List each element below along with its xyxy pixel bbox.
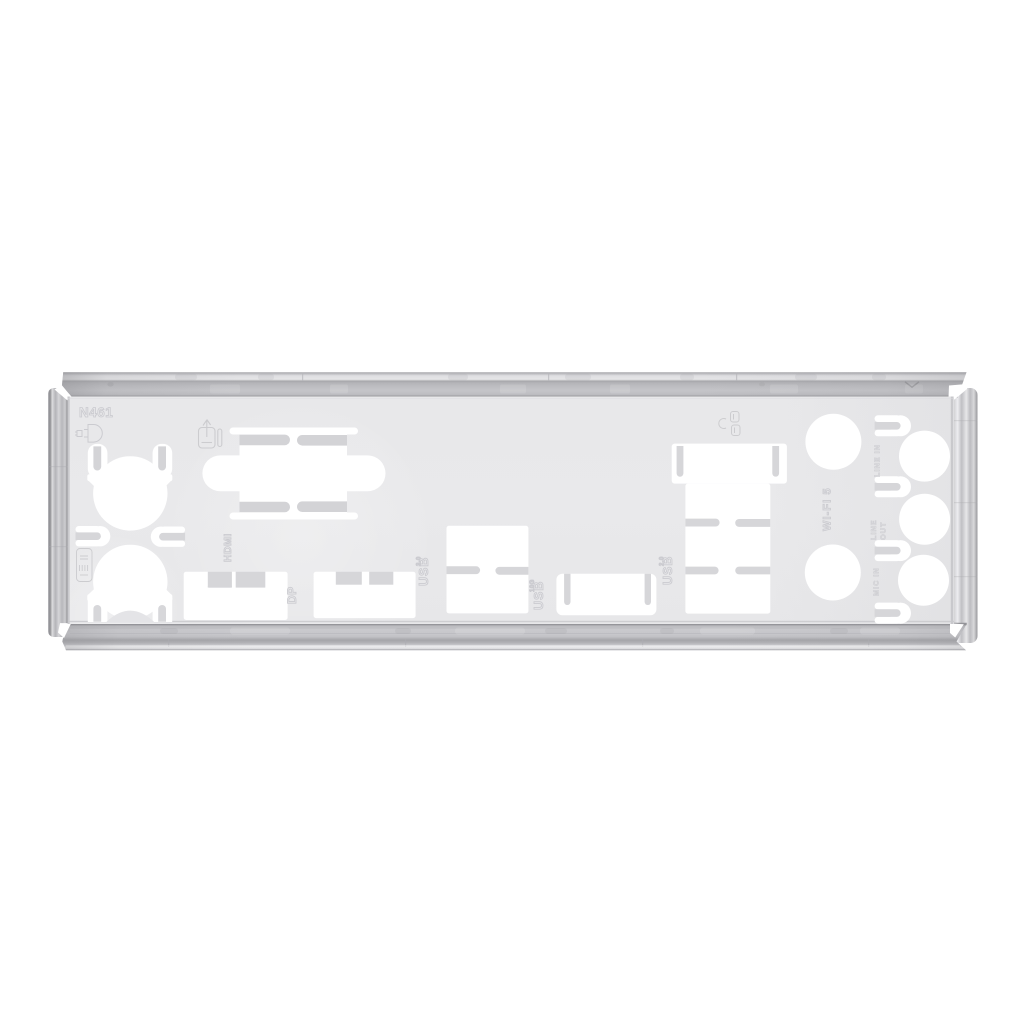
svg-text:2.0: 2.0 bbox=[417, 556, 423, 566]
svg-text:DP: DP bbox=[285, 586, 299, 604]
svg-text:LINE IN: LINE IN bbox=[873, 444, 882, 477]
svg-text:MIC IN: MIC IN bbox=[872, 567, 881, 596]
svg-text:WI-FI 5: WI-FI 5 bbox=[822, 487, 834, 531]
svg-text:LINE: LINE bbox=[869, 519, 878, 540]
svg-text:2.0: 2.0 bbox=[660, 556, 666, 566]
svg-text:N461: N461 bbox=[79, 405, 113, 420]
svg-text:HDMI: HDMI bbox=[222, 533, 234, 562]
svg-text:OUT: OUT bbox=[879, 522, 888, 540]
svg-text:10G: 10G bbox=[530, 579, 536, 592]
